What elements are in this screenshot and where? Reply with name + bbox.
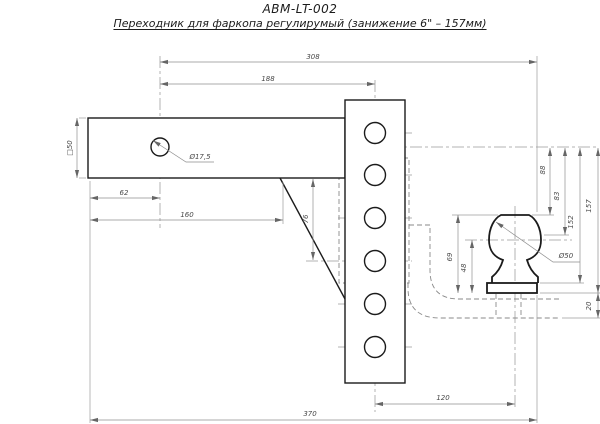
- dim-label-88: 88: [539, 165, 547, 174]
- drawing-sheet: 308 188 62 160 76 □50 Ø17,5 88 83 152 15…: [0, 0, 600, 424]
- dim-label-sq50: □50: [66, 140, 74, 156]
- dim-label-160: 160: [180, 211, 194, 219]
- dimension-labels: 308 188 62 160 76 □50 Ø17,5 88 83 152 15…: [66, 53, 593, 418]
- drawing-title: Переходник для фаркопа регулирумый (зани…: [0, 17, 600, 31]
- dim-label-152: 152: [567, 215, 575, 229]
- shank-tube: [88, 118, 345, 178]
- technical-drawing: 308 188 62 160 76 □50 Ø17,5 88 83 152 15…: [0, 0, 600, 424]
- dim-label-120: 120: [436, 394, 450, 402]
- dim-label-ball-dia: Ø50: [558, 252, 574, 260]
- drawing-header: ABM-LT-002 Переходник для фаркопа регули…: [0, 2, 600, 31]
- dim-label-69: 69: [446, 252, 454, 261]
- dim-label-48: 48: [460, 263, 468, 272]
- gusset-edge: [280, 178, 345, 299]
- dim-label-83: 83: [553, 192, 561, 201]
- dim-label-308: 308: [306, 53, 320, 61]
- ball-platform: [487, 283, 537, 293]
- drop-plate: [345, 100, 405, 383]
- dimension-lines: [77, 62, 598, 420]
- dim-label-157: 157: [585, 199, 593, 213]
- dim-label-62: 62: [120, 189, 129, 197]
- dim-label-188: 188: [261, 75, 275, 83]
- model-code: ABM-LT-002: [0, 2, 600, 17]
- dim-label-hole-dia: Ø17,5: [188, 153, 211, 161]
- extension-lines: [79, 56, 600, 423]
- dim-label-370: 370: [303, 410, 317, 418]
- dim-label-20: 20: [585, 301, 593, 310]
- dim-label-76: 76: [302, 214, 310, 223]
